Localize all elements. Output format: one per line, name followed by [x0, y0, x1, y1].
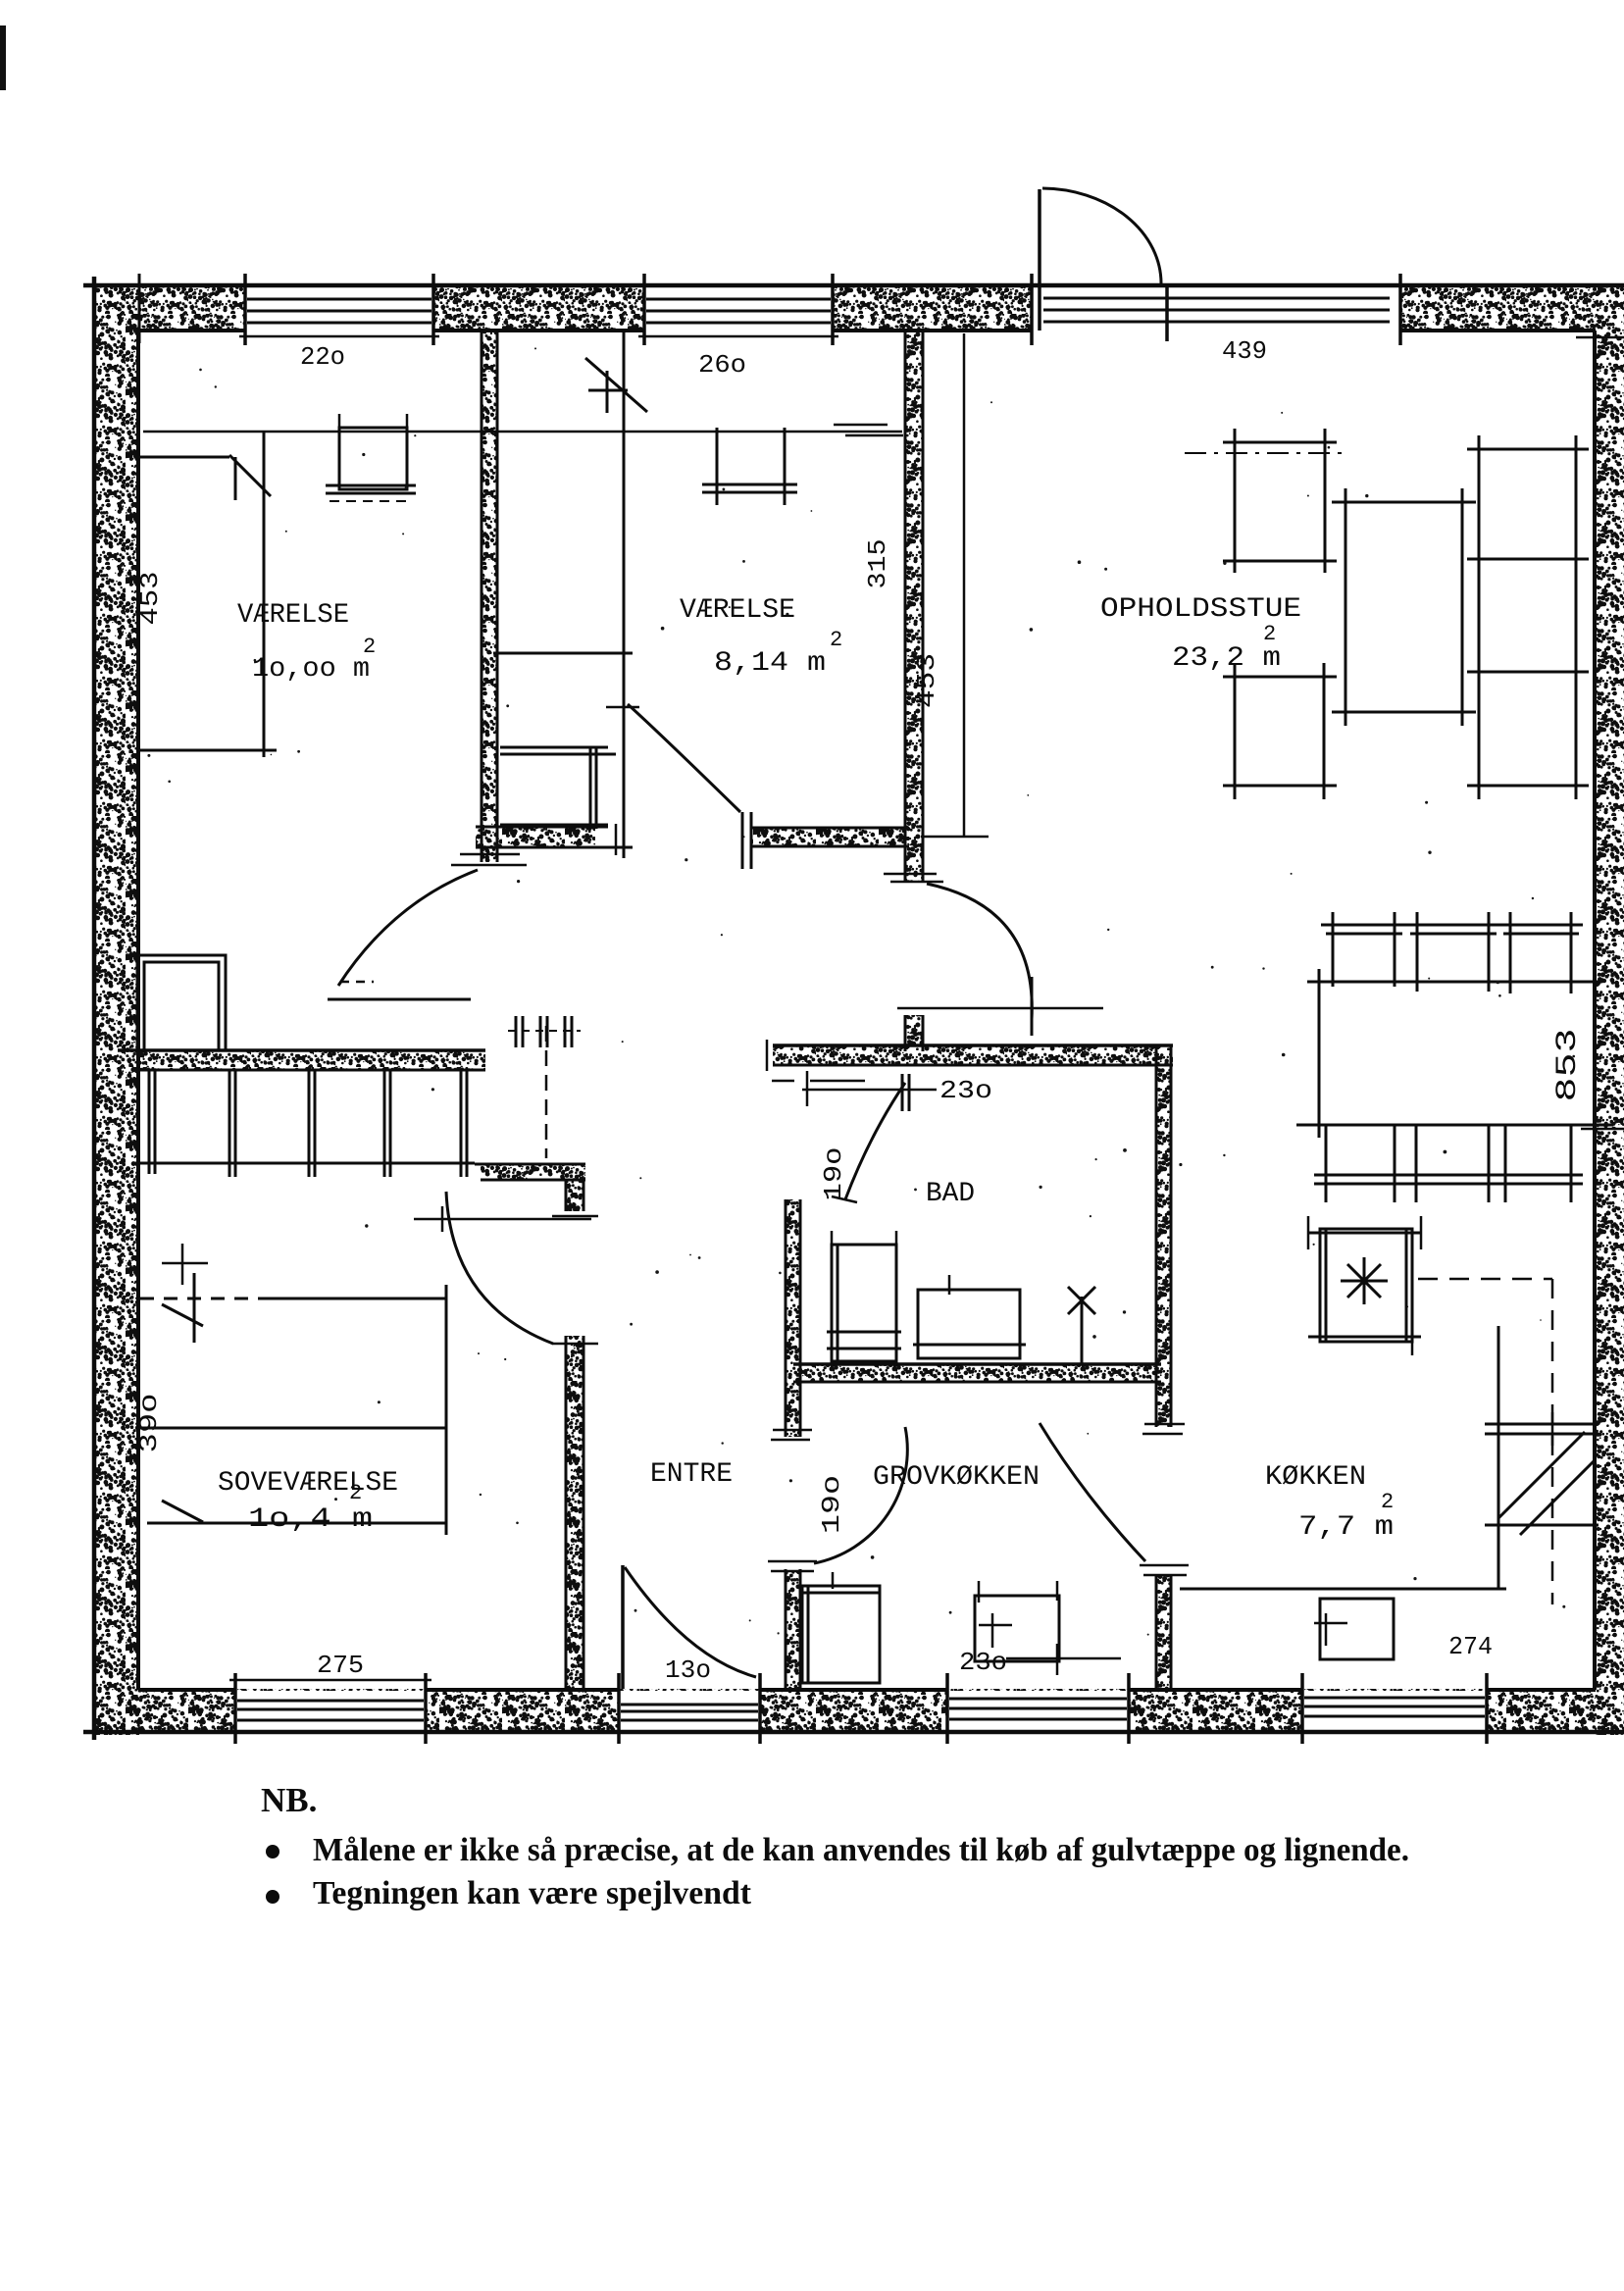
svg-text:2: 2 [830, 628, 842, 652]
svg-text:2: 2 [1381, 1490, 1394, 1514]
svg-text:453: 453 [135, 572, 165, 626]
svg-text:274: 274 [1448, 1632, 1493, 1661]
svg-text:23o: 23o [959, 1648, 1007, 1677]
svg-text:1o,oo m: 1o,oo m [252, 654, 370, 685]
svg-text:BAD: BAD [926, 1179, 975, 1209]
svg-text:Målene er ikke så præcise, at: Målene er ikke så præcise, at de kan anv… [313, 1832, 1409, 1868]
svg-text:2: 2 [349, 1481, 362, 1505]
svg-text:26o: 26o [698, 350, 746, 380]
svg-text:1o,4 m: 1o,4 m [248, 1504, 373, 1535]
svg-text:22o: 22o [300, 342, 345, 372]
svg-text:23,2 m: 23,2 m [1172, 643, 1281, 674]
svg-text:KØKKEN: KØKKEN [1265, 1462, 1366, 1493]
svg-text:SOVEVÆRELSE: SOVEVÆRELSE [218, 1468, 398, 1499]
svg-text:7,7 m: 7,7 m [1298, 1512, 1394, 1543]
svg-text:19o: 19o [817, 1475, 846, 1534]
svg-text:VÆRELSE: VÆRELSE [237, 600, 349, 631]
svg-text:853: 853 [1551, 1029, 1585, 1102]
svg-text:13o: 13o [665, 1655, 711, 1685]
svg-text:315: 315 [863, 539, 892, 589]
svg-text:275: 275 [317, 1651, 364, 1680]
svg-text:OPHOLDSSTUE: OPHOLDSSTUE [1100, 594, 1301, 625]
svg-text:Tegningen kan være spejlvendt: Tegningen kan være spejlvendt [313, 1875, 752, 1911]
svg-text:39o: 39o [134, 1394, 164, 1453]
svg-text:NB.: NB. [261, 1781, 317, 1819]
svg-text:ENTRE: ENTRE [650, 1459, 733, 1490]
svg-text:8,14 m: 8,14 m [714, 648, 826, 679]
svg-text:2: 2 [363, 635, 376, 659]
svg-text:453: 453 [912, 653, 941, 708]
svg-text:19o: 19o [819, 1147, 848, 1201]
svg-text:439: 439 [1222, 336, 1267, 366]
svg-text:23o: 23o [939, 1076, 992, 1105]
svg-text:2: 2 [1263, 622, 1276, 646]
svg-text:GROVKØKKEN: GROVKØKKEN [873, 1462, 1040, 1493]
svg-text:VÆRELSE: VÆRELSE [680, 595, 795, 626]
